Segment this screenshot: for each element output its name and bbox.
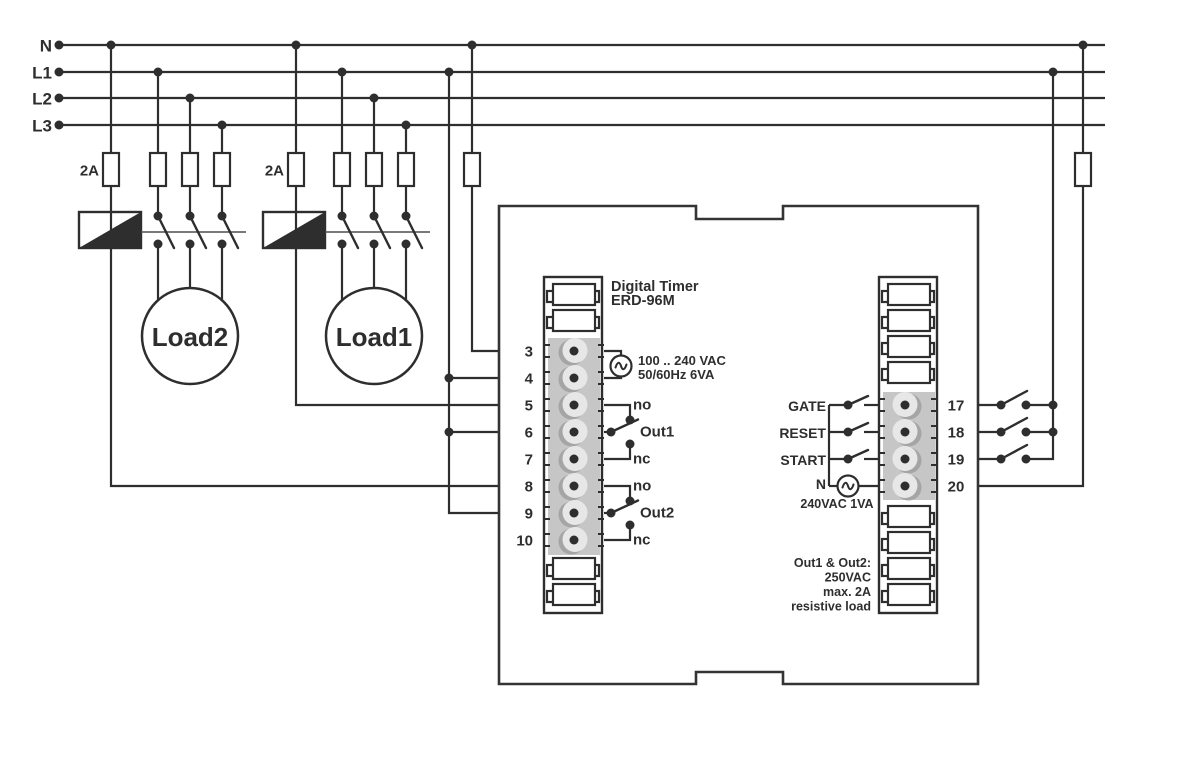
terminal-number-20: 20 bbox=[948, 479, 965, 496]
supply-freq-label: 50/60Hz 6VA bbox=[638, 367, 715, 382]
out2-no-label: no bbox=[633, 478, 651, 495]
input-label-start: START bbox=[780, 452, 826, 468]
terminal-number-5: 5 bbox=[525, 398, 533, 415]
supply-voltage-label: 100 .. 240 VAC bbox=[638, 353, 727, 368]
terminal-number-3: 3 bbox=[525, 344, 533, 361]
rating-note-line-4: resistive load bbox=[791, 600, 871, 614]
load2-label: Load2 bbox=[152, 322, 229, 352]
out1-label: Out1 bbox=[640, 424, 674, 441]
rating-note-line-2: 250VAC bbox=[825, 571, 871, 585]
fuse-rating-label-load2: 2A bbox=[80, 163, 99, 180]
wiring-diagram: Load2 Load1 bbox=[0, 0, 1182, 760]
fuse-icons bbox=[103, 153, 1091, 186]
out2-label: Out2 bbox=[640, 505, 674, 522]
rail-label-l3: L3 bbox=[32, 117, 52, 136]
load1-label: Load1 bbox=[336, 322, 413, 352]
terminal-number-17: 17 bbox=[948, 398, 965, 415]
out1-nc-label: nc bbox=[633, 451, 651, 468]
terminal-number-19: 19 bbox=[948, 452, 965, 469]
input-label-reset: RESET bbox=[779, 425, 826, 441]
load2-symbol: Load2 bbox=[142, 288, 238, 384]
rail-label-n: N bbox=[40, 37, 52, 56]
right-terminal-block bbox=[879, 277, 937, 613]
wiring-diagram-page: Load2 Load1 bbox=[0, 0, 1182, 760]
terminal-number-10: 10 bbox=[516, 533, 533, 550]
timer-model: ERD-96M bbox=[611, 293, 675, 309]
terminal-number-4: 4 bbox=[525, 371, 534, 388]
input-label-neutral: N bbox=[816, 476, 826, 492]
terminal-number-8: 8 bbox=[525, 479, 533, 496]
terminal-number-7: 7 bbox=[525, 452, 533, 469]
out2-nc-label: nc bbox=[633, 532, 651, 549]
terminal-number-18: 18 bbox=[948, 425, 965, 442]
contactor-coil-load1-icon bbox=[263, 212, 325, 248]
rating-note-line-3: max. 2A bbox=[823, 585, 871, 599]
input-rating-label: 240VAC 1VA bbox=[800, 497, 873, 511]
rail-label-l1: L1 bbox=[32, 64, 52, 83]
terminal-number-6: 6 bbox=[525, 425, 533, 442]
timer-supply-symbol bbox=[604, 351, 632, 378]
rail-label-l2: L2 bbox=[32, 90, 52, 109]
left-terminal-numbers: 3 4 5 6 7 8 9 10 bbox=[516, 344, 533, 550]
right-terminal-numbers: 17 18 19 20 bbox=[948, 398, 965, 496]
fuse-rating-label-load1: 2A bbox=[265, 163, 284, 180]
power-rails bbox=[58, 45, 1105, 125]
timer-input-rows bbox=[829, 396, 878, 497]
external-input-switches bbox=[978, 391, 1031, 464]
load1-symbol: Load1 bbox=[326, 288, 422, 384]
rating-note-line-1: Out1 & Out2: bbox=[794, 556, 871, 570]
terminal-number-9: 9 bbox=[525, 506, 533, 523]
out1-no-label: no bbox=[633, 397, 651, 414]
input-label-gate: GATE bbox=[788, 398, 826, 414]
left-terminal-block bbox=[544, 277, 604, 613]
